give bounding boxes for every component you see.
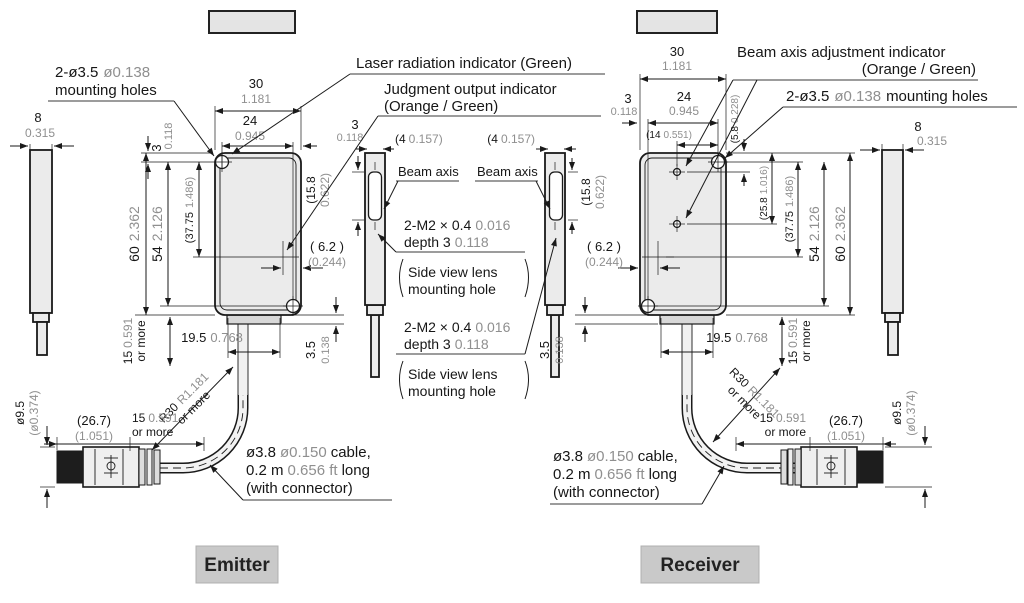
dim-267: (26.7) bbox=[829, 413, 863, 428]
dim-158: (15.8 bbox=[304, 176, 318, 204]
emitter-connector bbox=[57, 447, 160, 487]
dim-24-in: 0.945 bbox=[669, 104, 699, 118]
svg-text:mounting holes: mounting holes bbox=[55, 82, 157, 99]
receiver-label: Receiver bbox=[660, 555, 740, 576]
dim-195: 19.50.768 bbox=[181, 330, 243, 345]
emitter-front-view bbox=[212, 152, 303, 395]
dim-3v: 3 bbox=[149, 144, 164, 151]
svg-text:depth 30.118: depth 30.118 bbox=[404, 336, 489, 352]
dim-24-in: 0.945 bbox=[235, 129, 265, 143]
dim-3: 3 bbox=[624, 91, 631, 106]
dim-3: 3 bbox=[351, 117, 358, 132]
dim-15conn-text: or more bbox=[765, 425, 807, 439]
dim-30-in: 1.181 bbox=[241, 92, 271, 106]
dim-267-in: (1.051) bbox=[75, 429, 113, 443]
dim-3775: (37.751.486) bbox=[184, 177, 196, 243]
section-label-receiver: Receiver bbox=[641, 546, 759, 583]
beam-axis-label: Beam axis bbox=[398, 164, 459, 179]
receiver-front-view bbox=[638, 152, 728, 395]
side-lens-note-2: Side view lens mounting hole bbox=[400, 361, 529, 399]
svg-text:2-ø3.5ø0.138: 2-ø3.5ø0.138 bbox=[55, 64, 150, 81]
m2-note-1: 2-M2 × 0.40.016 depth 30.118 bbox=[378, 217, 525, 252]
svg-text:(with connector): (with connector) bbox=[553, 484, 660, 501]
dim-62: ( 6.2 ) bbox=[587, 239, 621, 254]
dim-3-in: 0.118 bbox=[611, 106, 638, 118]
dim-30: 30 bbox=[670, 44, 684, 59]
dim-4: (40.157) bbox=[395, 132, 443, 146]
dim-35-in: 0.138 bbox=[320, 336, 332, 364]
svg-text:ø3.8ø0.150cable,: ø3.8ø0.150cable, bbox=[553, 448, 678, 465]
side-lens-note-1: Side view lens mounting hole bbox=[400, 259, 529, 297]
dim-95: ø9.5 bbox=[890, 401, 904, 425]
model-name-boxes bbox=[209, 11, 717, 33]
svg-text:mounting hole: mounting hole bbox=[408, 383, 496, 399]
dim-62-in: (0.244) bbox=[585, 255, 623, 269]
svg-text:0.2 m0.656 ftlong: 0.2 m0.656 ftlong bbox=[553, 466, 677, 483]
dim-60: 602.362 bbox=[832, 206, 848, 262]
dim-95-in: (ø0.374) bbox=[27, 390, 41, 435]
receiver-connector bbox=[781, 447, 883, 487]
dim-95: ø9.5 bbox=[13, 401, 27, 425]
svg-text:(Orange / Green): (Orange / Green) bbox=[384, 98, 498, 115]
svg-text:Side view lens: Side view lens bbox=[408, 264, 498, 280]
dim-8: 8 bbox=[914, 119, 921, 134]
svg-text:2-M2 × 0.40.016: 2-M2 × 0.40.016 bbox=[404, 217, 511, 233]
mounting-holes-callout-left: 2-ø3.5ø0.138 mounting holes bbox=[48, 64, 214, 156]
dim-267: (26.7) bbox=[77, 413, 111, 428]
dim-95-in: (ø0.374) bbox=[904, 390, 918, 435]
dim-24: 24 bbox=[677, 89, 691, 104]
svg-text:mounting hole: mounting hole bbox=[408, 281, 496, 297]
svg-text:Judgment output indicator: Judgment output indicator bbox=[384, 81, 557, 98]
dim-30-in: 1.181 bbox=[662, 59, 692, 73]
dim-58: (5.80.228) bbox=[730, 95, 741, 144]
emitter-label: Emitter bbox=[204, 555, 270, 576]
dim-195: 19.50.768 bbox=[706, 330, 768, 345]
dim-62-in: (0.244) bbox=[308, 255, 346, 269]
side-view-dimensions: (40.157) (40.157) Beam axis Beam axis (1… bbox=[356, 132, 607, 399]
svg-text:0.2 m0.656 ftlong: 0.2 m0.656 ftlong bbox=[246, 462, 370, 479]
section-label-emitter: Emitter bbox=[196, 546, 278, 583]
svg-text:Side view lens: Side view lens bbox=[408, 366, 498, 382]
dim-15conn: 150.591 bbox=[760, 411, 807, 425]
dim-3v-in: 0.118 bbox=[163, 123, 175, 150]
dim-15more: 150.591 bbox=[786, 317, 800, 364]
svg-text:2-ø3.5ø0.138mounting holes: 2-ø3.5ø0.138mounting holes bbox=[786, 88, 988, 105]
dim-60: 602.362 bbox=[126, 206, 142, 262]
svg-text:(Orange / Green): (Orange / Green) bbox=[862, 61, 976, 78]
dim-8: 8 bbox=[34, 110, 41, 125]
emitter-side-profile bbox=[30, 150, 52, 355]
dim-258: (25.81.016) bbox=[759, 166, 770, 220]
dim-3-in: 0.118 bbox=[337, 132, 364, 144]
dim-62: ( 6.2 ) bbox=[310, 239, 344, 254]
beam-axis-label: Beam axis bbox=[477, 164, 538, 179]
dim-15more-text: or more bbox=[134, 320, 148, 362]
dim-267-in: (1.051) bbox=[827, 429, 865, 443]
model-box-left bbox=[209, 11, 295, 33]
dim-8-in: 0.315 bbox=[917, 134, 947, 148]
dim-35: 3.5 bbox=[303, 341, 318, 359]
model-box-right bbox=[637, 11, 717, 33]
dimension-drawing: 30 1.181 24 0.945 3 0.118 3 0.118 602.36… bbox=[0, 0, 1024, 598]
dim-15conn: 150.591 bbox=[132, 411, 179, 425]
svg-text:depth 30.118: depth 30.118 bbox=[404, 234, 489, 250]
dim-24: 24 bbox=[243, 113, 257, 128]
mounting-holes-callout-right: 2-ø3.5ø0.138mounting holes bbox=[725, 88, 1017, 158]
dim-54: 542.126 bbox=[149, 206, 165, 262]
dim-158: (15.8 bbox=[579, 178, 593, 206]
side-view-1 bbox=[365, 153, 385, 377]
dim-8-in: 0.315 bbox=[25, 126, 55, 140]
dim-15conn-text: or more bbox=[132, 425, 174, 439]
svg-text:Laser radiation indicator (Gre: Laser radiation indicator (Green) bbox=[356, 55, 572, 72]
svg-text:(with connector): (with connector) bbox=[246, 480, 353, 497]
svg-text:Beam axis adjustment indicator: Beam axis adjustment indicator bbox=[737, 44, 945, 61]
dim-35-in: 0.138 bbox=[554, 336, 566, 364]
dim-158-in: 0.622) bbox=[593, 175, 607, 209]
dim-54: 542.126 bbox=[806, 206, 822, 262]
drawing-canvas: 30 1.181 24 0.945 3 0.118 3 0.118 602.36… bbox=[0, 0, 1024, 598]
dim-15more-text: or more bbox=[799, 320, 813, 362]
cable-note-left: ø3.8ø0.150cable, 0.2 m0.656 ftlong (with… bbox=[210, 444, 392, 500]
dim-4: (40.157) bbox=[487, 132, 535, 146]
svg-text:ø3.8ø0.150cable,: ø3.8ø0.150cable, bbox=[246, 444, 371, 461]
dim-3775: (37.751.486) bbox=[784, 176, 796, 242]
dim-15more: 150.591 bbox=[121, 317, 135, 364]
dim-35: 3.5 bbox=[537, 341, 552, 359]
receiver-side-profile bbox=[882, 150, 903, 355]
dim-14: (140.551) bbox=[646, 130, 692, 141]
svg-text:2-M2 × 0.40.016: 2-M2 × 0.40.016 bbox=[404, 319, 511, 335]
cable-note-right: ø3.8ø0.150cable, 0.2 m0.656 ftlong (with… bbox=[550, 448, 724, 504]
dim-30: 30 bbox=[249, 76, 263, 91]
